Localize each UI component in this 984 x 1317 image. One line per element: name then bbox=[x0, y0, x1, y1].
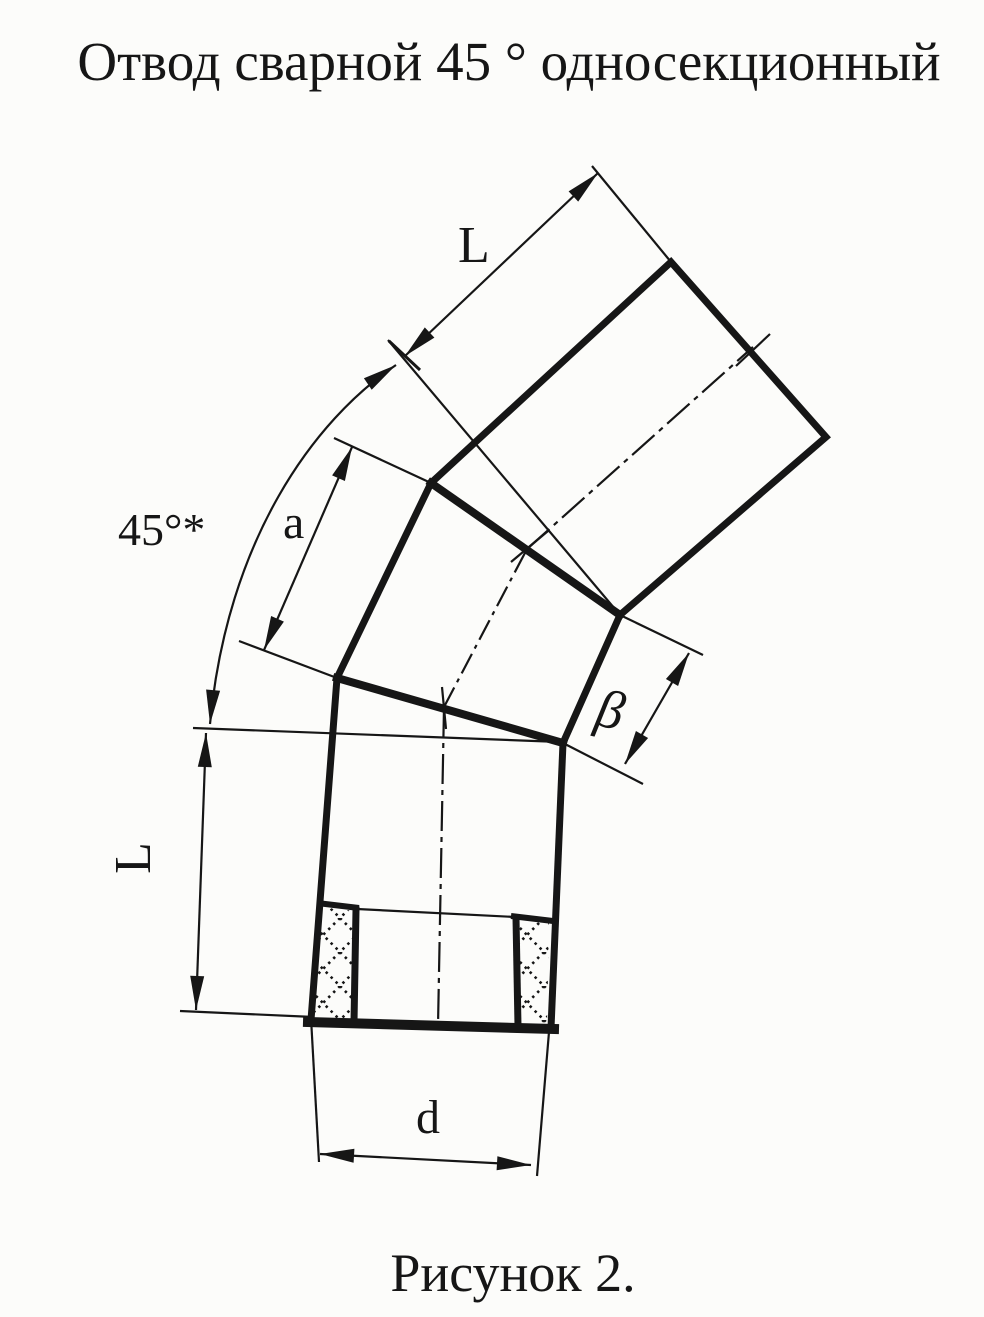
upper-pipe-outline bbox=[431, 262, 826, 615]
upper-length-dim-line bbox=[405, 173, 598, 356]
lower-length-label: L bbox=[105, 842, 162, 874]
upper-pipe-centerline bbox=[527, 347, 753, 549]
left-packing-hatch bbox=[314, 907, 355, 1020]
middle-wedge-section bbox=[337, 483, 620, 743]
left-packing-top bbox=[317, 903, 359, 908]
angle-dimension: 45°* bbox=[118, 365, 396, 724]
d-extension-left bbox=[311, 1018, 319, 1162]
d-arrow-left bbox=[320, 1149, 354, 1163]
angle-label: 45°* bbox=[118, 504, 205, 555]
left-inner-wall bbox=[354, 910, 356, 1022]
section-length-label: a bbox=[283, 496, 304, 549]
bore-dimension: d bbox=[311, 1018, 549, 1176]
bore-diameter-label: d bbox=[416, 1091, 440, 1144]
lower-length-extension-bottom bbox=[180, 1011, 314, 1017]
lower-length-dim-line bbox=[196, 733, 206, 1010]
scanned-drawing-page: Отвод сварной 45 ° односекционный bbox=[0, 0, 984, 1317]
a-extension-bottom bbox=[239, 641, 337, 678]
d-extension-right bbox=[537, 1032, 549, 1176]
wedge-left-edge bbox=[337, 483, 431, 678]
lower-length-arrow-bottom bbox=[190, 976, 204, 1010]
lower-pipe-centerline bbox=[438, 707, 444, 1026]
beta-arrow-bottom bbox=[625, 731, 648, 764]
upper-length-label: L bbox=[458, 217, 490, 274]
seam-extension-line bbox=[388, 340, 620, 615]
socket-shoulder-line bbox=[357, 909, 515, 917]
lower-length-arrow-top bbox=[198, 733, 212, 767]
figure-caption: Рисунок 2. bbox=[390, 1243, 635, 1303]
right-inner-wall bbox=[516, 918, 518, 1026]
lower-weld-seam bbox=[337, 678, 563, 743]
drawing-title: Отвод сварной 45 ° односекционный bbox=[77, 31, 940, 92]
d-arrow-right bbox=[497, 1156, 531, 1170]
wedge-centerline bbox=[444, 549, 527, 707]
arc-arrow-bottom bbox=[206, 690, 220, 725]
section-length-dimension: a bbox=[239, 438, 431, 678]
right-packing-hatch bbox=[517, 921, 549, 1025]
end-width-label: β bbox=[590, 677, 630, 742]
lower-pipe-right-wall bbox=[551, 743, 563, 1028]
upper-pipe-section bbox=[431, 262, 826, 615]
end-face-extension-line bbox=[592, 166, 671, 262]
beta-arrow-top bbox=[666, 653, 689, 686]
beta-extension-top bbox=[620, 615, 703, 655]
a-arrow-top bbox=[332, 447, 352, 481]
elbow-technical-drawing: Отвод сварной 45 ° односекционный bbox=[0, 0, 984, 1317]
a-arrow-bottom bbox=[264, 616, 284, 650]
